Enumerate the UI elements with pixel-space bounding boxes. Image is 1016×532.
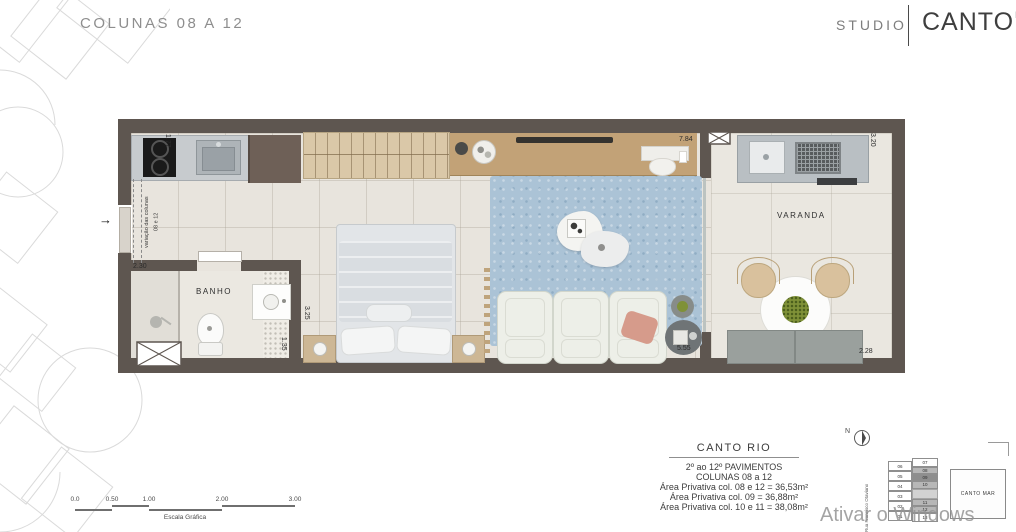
scale-tick-label: 0.50 — [106, 496, 119, 503]
bed-pillow — [340, 325, 396, 356]
column-variation-dash-line — [141, 179, 142, 263]
key-plan-core — [912, 489, 938, 499]
brand-logo-name: CANTO — [922, 8, 1014, 36]
coffee-table-tray — [567, 219, 586, 238]
key-plan-unit-07: 07 — [912, 458, 938, 467]
bench — [727, 330, 795, 364]
scale-bar-segment — [75, 509, 112, 511]
brand-logo: CANTORIO — [922, 8, 1016, 37]
toilet-tank — [198, 342, 223, 356]
key-plan-unit-09: 09 — [912, 474, 938, 481]
key-plan-outline — [988, 442, 1009, 456]
dining-chair — [741, 263, 776, 298]
dim-kitchen: 1.77 — [164, 134, 171, 148]
info-box-title: CANTO RIO — [622, 442, 846, 454]
info-box-lines: 2º ao 12º PAVIMENTOSCOLUNAS 08 a 12Área … — [622, 462, 846, 512]
bench — [795, 330, 863, 364]
key-plan-unit-10: 10 — [912, 481, 938, 488]
brand-divider — [908, 5, 909, 46]
desk-chair — [649, 158, 676, 176]
column-variation-dash-line — [133, 179, 134, 263]
key-plan-unit-03: 03 — [888, 491, 912, 501]
shaft-symbol — [136, 341, 182, 367]
column-variation-line1: variação das colunas — [143, 178, 152, 266]
info-box: CANTO RIO 2º ao 12º PAVIMENTOSCOLUNAS 08… — [622, 442, 846, 512]
sliding-glass-door — [703, 178, 706, 332]
nightstand — [303, 335, 336, 363]
decor-plate — [472, 140, 496, 164]
dim-bathroom: 1.35 — [280, 337, 287, 351]
bathroom-vanity — [252, 284, 291, 320]
varanda-sink — [749, 141, 785, 174]
scale-tick-label: 2.00 — [216, 496, 229, 503]
column-variation-note: variação das colunas 08 e 12 — [143, 178, 162, 266]
scale-tick-label: 1.00 — [143, 496, 156, 503]
kitchen-cabinet — [248, 135, 301, 183]
scale-bar-segment — [149, 509, 222, 511]
bed-pillow — [396, 325, 452, 356]
info-box-line: Área Privativa col. 08 e 12 = 36,53m² — [622, 482, 846, 492]
cooktop — [143, 138, 176, 177]
info-box-line: 2º ao 12º PAVIMENTOS — [622, 462, 846, 472]
info-box-line: Área Privativa col. 10 e 11 = 38,08m² — [622, 502, 846, 512]
north-compass-icon — [853, 429, 871, 447]
scale-bar-segment — [112, 505, 149, 507]
key-plan-unit-06: 06 — [888, 461, 912, 471]
side-table — [671, 295, 694, 318]
dim-living-length: 7.84 — [679, 136, 693, 143]
scale-tick-label: 0.0 — [70, 496, 79, 503]
sofa-module — [553, 291, 609, 364]
grill — [795, 142, 841, 174]
dim-varanda-width: 2.28 — [859, 348, 873, 355]
page-title: COLUNAS 08 A 12 — [80, 15, 244, 32]
info-box-rule — [669, 457, 799, 458]
grill-vent — [817, 178, 857, 185]
slat-divider — [480, 268, 494, 353]
table-plant — [782, 296, 809, 323]
wall-top — [118, 119, 905, 133]
entry-door — [119, 207, 131, 253]
desk-item — [679, 151, 687, 163]
key-plan-unit-04: 04 — [888, 481, 912, 491]
room-label-varanda: VARANDA — [777, 211, 826, 220]
dim-varanda-depth: 3.20 — [869, 133, 876, 147]
info-box-line: COLUNAS 08 a 12 — [622, 472, 846, 482]
entry-arrow-icon: → — [99, 212, 112, 227]
wardrobe — [303, 132, 450, 179]
room-label-banho: BANHO — [196, 287, 232, 296]
coffee-table-decor — [598, 244, 605, 251]
dining-chair — [815, 263, 850, 298]
info-box-line: Área Privativa col. 09 = 36,88m² — [622, 492, 846, 502]
dim-living-width: 5.55 — [677, 345, 691, 352]
column-variation-line2: 08 e 12 — [152, 178, 161, 266]
scale-bar-segment — [222, 505, 295, 507]
scale-bar: 0.00.501.002.003.00 Escala Gráfica — [75, 496, 295, 526]
dim-bedroom: 3.25 — [303, 306, 310, 320]
shower-head — [150, 316, 162, 328]
scale-bar-label: Escala Gráfica — [75, 514, 295, 521]
key-plan-unit-05: 05 — [888, 471, 912, 481]
wall-right — [892, 119, 905, 373]
tv — [516, 137, 613, 143]
coffee-table — [581, 231, 629, 267]
brand-studio-label: STUDIO — [836, 17, 907, 33]
kitchen-sink — [196, 140, 241, 175]
decor-vase — [455, 142, 468, 155]
page: COLUNAS 08 A 12 STUDIO CANTORIO — [0, 0, 1016, 532]
scale-tick-label: 3.00 — [289, 496, 302, 503]
bathroom-door — [198, 251, 242, 262]
key-plan-unit-08: 08 — [912, 467, 938, 474]
shaft-symbol — [707, 131, 731, 145]
windows-activation-watermark: Ativar o Windows — [820, 504, 975, 527]
bed-bolster — [366, 304, 412, 322]
sofa-module — [497, 291, 553, 364]
north-label: N — [845, 428, 850, 435]
